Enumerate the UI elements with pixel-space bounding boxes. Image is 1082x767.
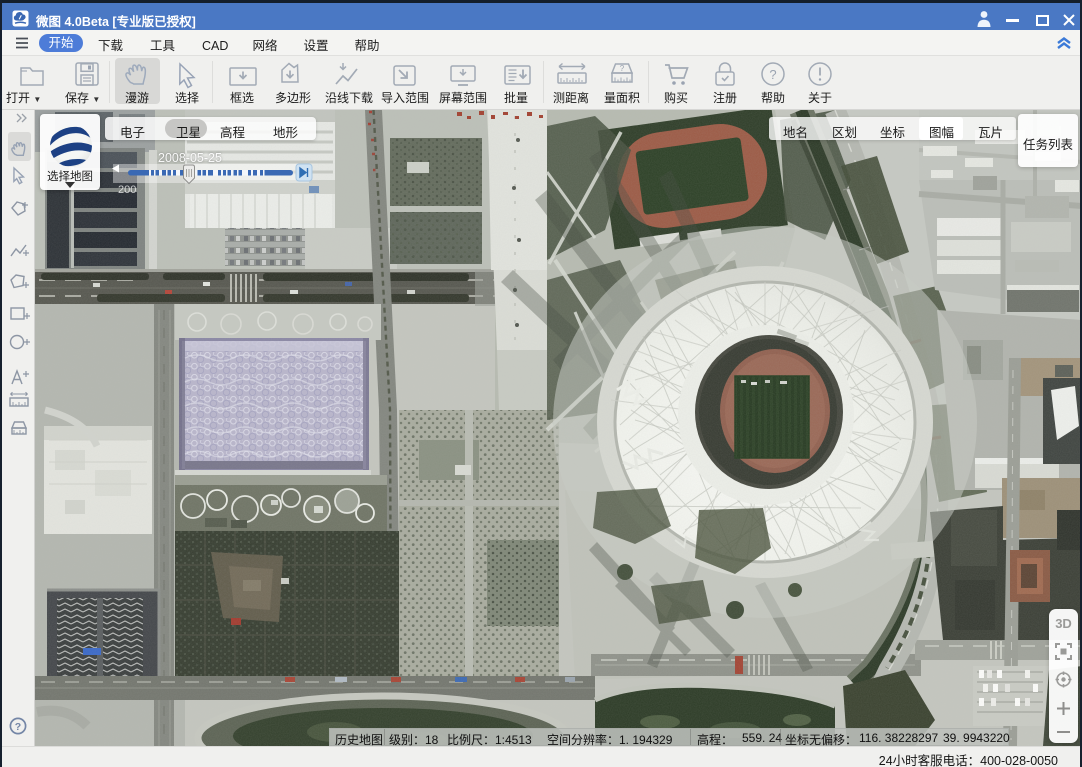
svg-text:?: ? [15, 721, 21, 733]
svg-text:?: ? [620, 64, 625, 73]
svg-text:?: ? [769, 67, 776, 82]
